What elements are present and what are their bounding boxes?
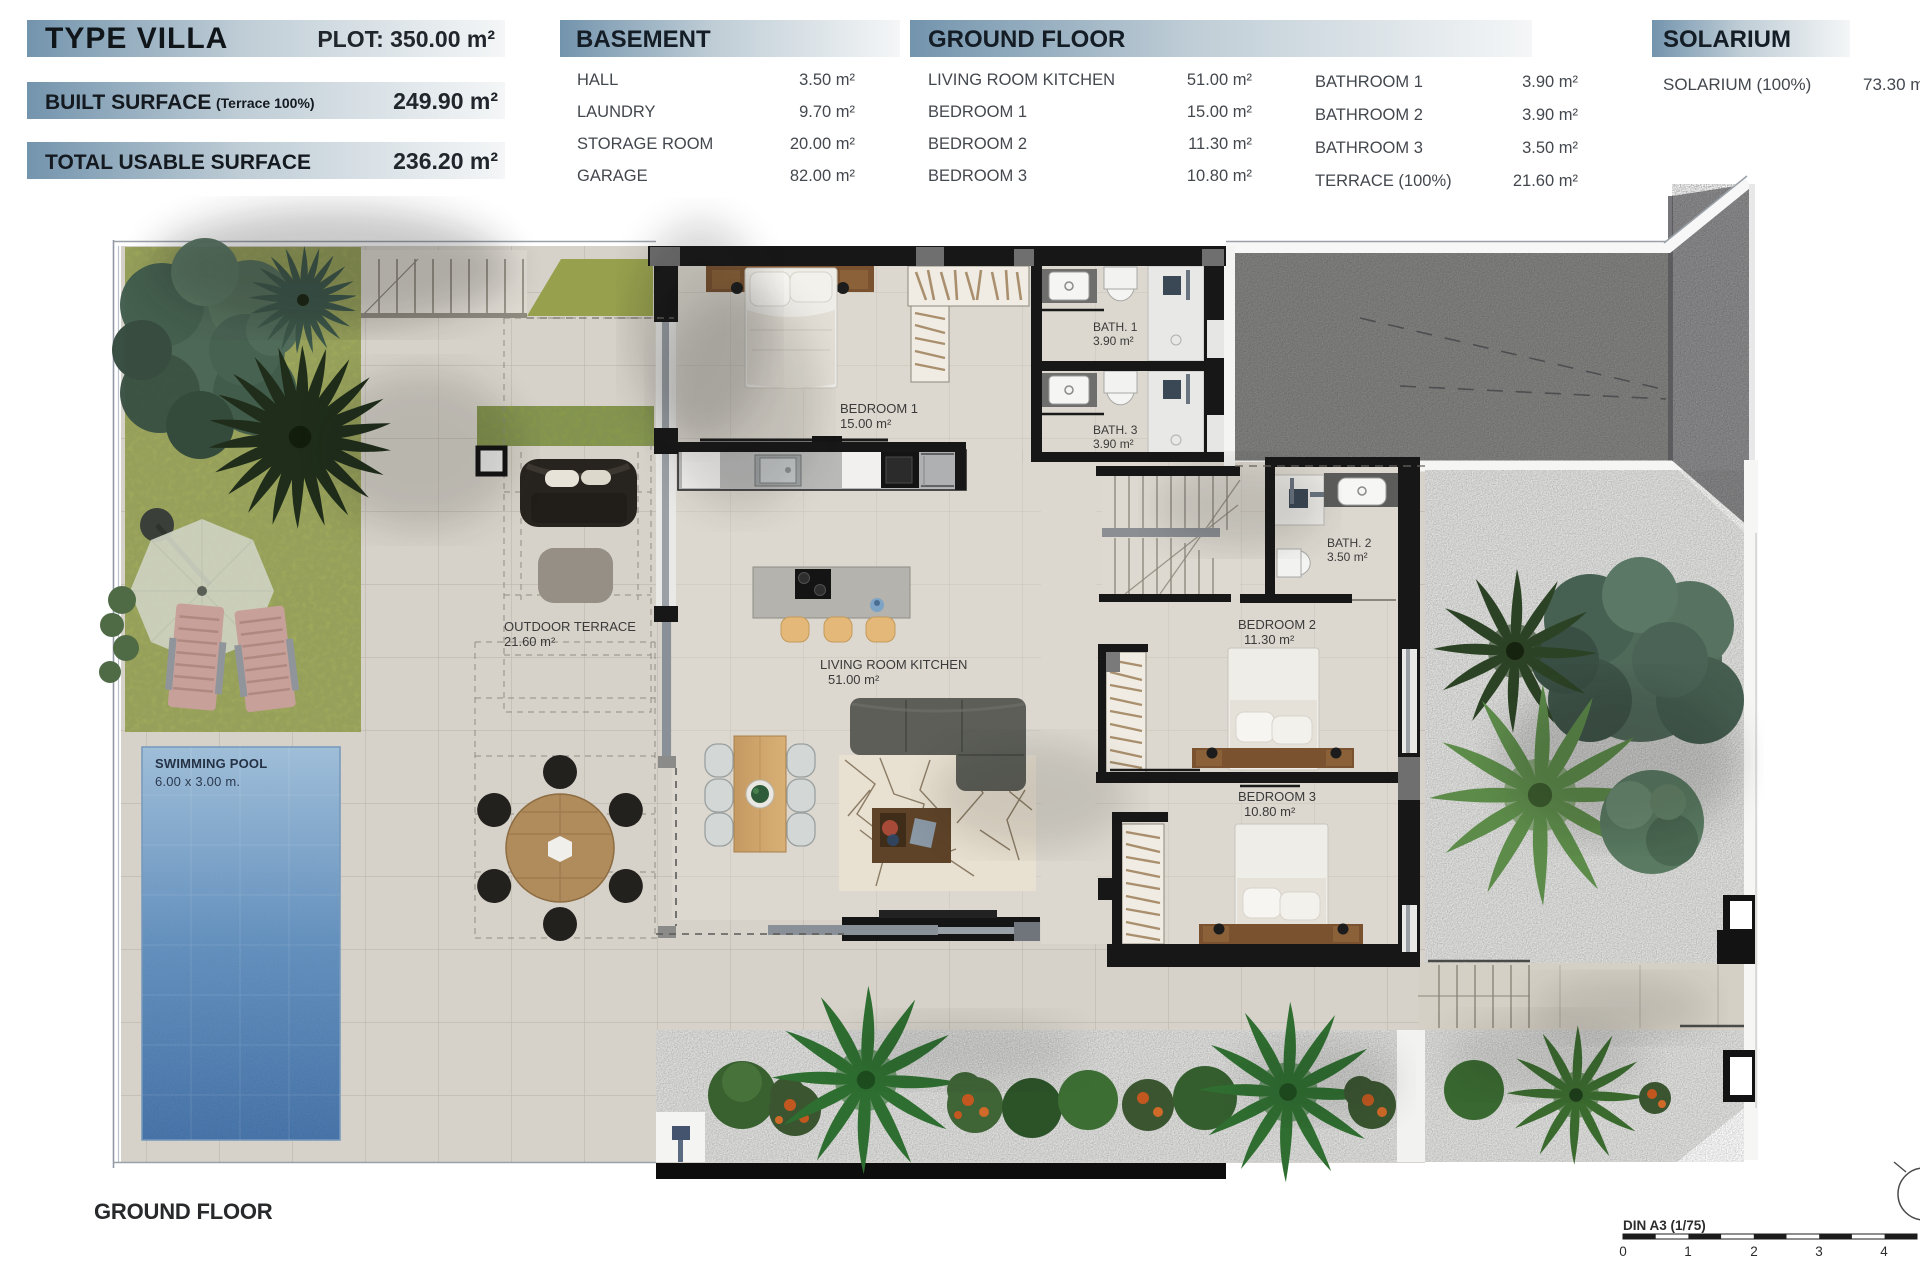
svg-text:BATHROOM 2: BATHROOM 2	[1315, 106, 1423, 124]
svg-text:3: 3	[1815, 1244, 1823, 1259]
svg-text:OUTDOOR TERRACE: OUTDOOR TERRACE	[504, 619, 636, 634]
svg-text:11.30 m²: 11.30 m²	[1188, 135, 1252, 153]
svg-text:HALL: HALL	[577, 71, 618, 89]
svg-text:51.00 m²: 51.00 m²	[1187, 71, 1253, 89]
svg-text:BATH. 3: BATH. 3	[1093, 423, 1138, 437]
svg-text:BASEMENT: BASEMENT	[576, 26, 711, 53]
svg-text:9.70 m²: 9.70 m²	[799, 103, 855, 121]
svg-text:SOLARIUM (100%): SOLARIUM (100%)	[1663, 75, 1811, 94]
svg-text:73.30 m²: 73.30 m²	[1863, 75, 1920, 94]
svg-text:LIVING ROOM KITCHEN: LIVING ROOM KITCHEN	[928, 71, 1115, 89]
svg-text:GROUND FLOOR: GROUND FLOOR	[94, 1199, 273, 1224]
svg-text:10.80 m²: 10.80 m²	[1187, 167, 1253, 185]
svg-text:51.00 m²: 51.00 m²	[828, 672, 880, 687]
svg-text:TERRACE (100%): TERRACE (100%)	[1315, 172, 1452, 190]
svg-text:2: 2	[1750, 1244, 1758, 1259]
svg-text:3.90 m²: 3.90 m²	[1522, 73, 1578, 91]
svg-text:GARAGE: GARAGE	[577, 167, 648, 185]
svg-text:BEDROOM 3: BEDROOM 3	[1238, 789, 1316, 804]
svg-text:236.20 m²: 236.20 m²	[393, 148, 498, 174]
svg-text:LIVING ROOM KITCHEN: LIVING ROOM KITCHEN	[820, 657, 967, 672]
svg-text:6.00 x 3.00 m.: 6.00 x 3.00 m.	[155, 774, 240, 789]
svg-text:BEDROOM 3: BEDROOM 3	[928, 167, 1027, 185]
svg-text:STORAGE ROOM: STORAGE ROOM	[577, 135, 713, 153]
svg-text:SOLARIUM: SOLARIUM	[1663, 26, 1791, 53]
svg-text:3.90 m²: 3.90 m²	[1522, 106, 1578, 124]
svg-text:LAUNDRY: LAUNDRY	[577, 103, 656, 121]
svg-text:15.00 m²: 15.00 m²	[840, 416, 892, 431]
svg-text:1: 1	[1684, 1244, 1692, 1259]
svg-text:3.50 m²: 3.50 m²	[1522, 139, 1578, 157]
svg-text:BATH. 2: BATH. 2	[1327, 536, 1372, 550]
svg-text:82.00 m²: 82.00 m²	[790, 167, 856, 185]
svg-text:249.90 m²: 249.90 m²	[393, 88, 498, 114]
svg-text:3.50 m²: 3.50 m²	[1327, 550, 1368, 564]
svg-text:SWIMMING POOL: SWIMMING POOL	[155, 756, 267, 771]
svg-text:21.60 m²: 21.60 m²	[1513, 172, 1579, 190]
svg-text:3.90 m²: 3.90 m²	[1093, 334, 1134, 348]
svg-text:3.90 m²: 3.90 m²	[1093, 437, 1134, 451]
svg-text:15.00 m²: 15.00 m²	[1187, 103, 1253, 121]
svg-text:0: 0	[1619, 1244, 1627, 1259]
svg-text:3.50 m²: 3.50 m²	[799, 71, 855, 89]
svg-text:(Terrace 100%): (Terrace 100%)	[216, 95, 315, 111]
svg-text:BEDROOM 2: BEDROOM 2	[928, 135, 1027, 153]
svg-text:BEDROOM 1: BEDROOM 1	[840, 401, 918, 416]
svg-text:BATHROOM 3: BATHROOM 3	[1315, 139, 1423, 157]
svg-text:BEDROOM 1: BEDROOM 1	[928, 103, 1027, 121]
svg-text:TOTAL USABLE SURFACE: TOTAL USABLE SURFACE	[45, 151, 311, 174]
svg-text:4: 4	[1880, 1244, 1888, 1259]
svg-text:TYPE VILLA: TYPE VILLA	[45, 22, 228, 55]
svg-text:BATH. 1: BATH. 1	[1093, 320, 1138, 334]
svg-text:BATHROOM 1: BATHROOM 1	[1315, 73, 1423, 91]
svg-text:20.00 m²: 20.00 m²	[790, 135, 856, 153]
svg-text:10.80 m²: 10.80 m²	[1244, 804, 1296, 819]
svg-text:21.60 m²: 21.60 m²	[504, 634, 556, 649]
svg-text:GROUND FLOOR: GROUND FLOOR	[928, 26, 1125, 53]
svg-text:11.30 m²: 11.30 m²	[1244, 632, 1295, 647]
svg-text:PLOT: 350.00 m²: PLOT: 350.00 m²	[317, 26, 495, 52]
svg-text:DIN A3 (1/75): DIN A3 (1/75)	[1623, 1218, 1706, 1233]
svg-text:BUILT SURFACE: BUILT SURFACE	[45, 91, 211, 114]
svg-text:BEDROOM 2: BEDROOM 2	[1238, 617, 1316, 632]
